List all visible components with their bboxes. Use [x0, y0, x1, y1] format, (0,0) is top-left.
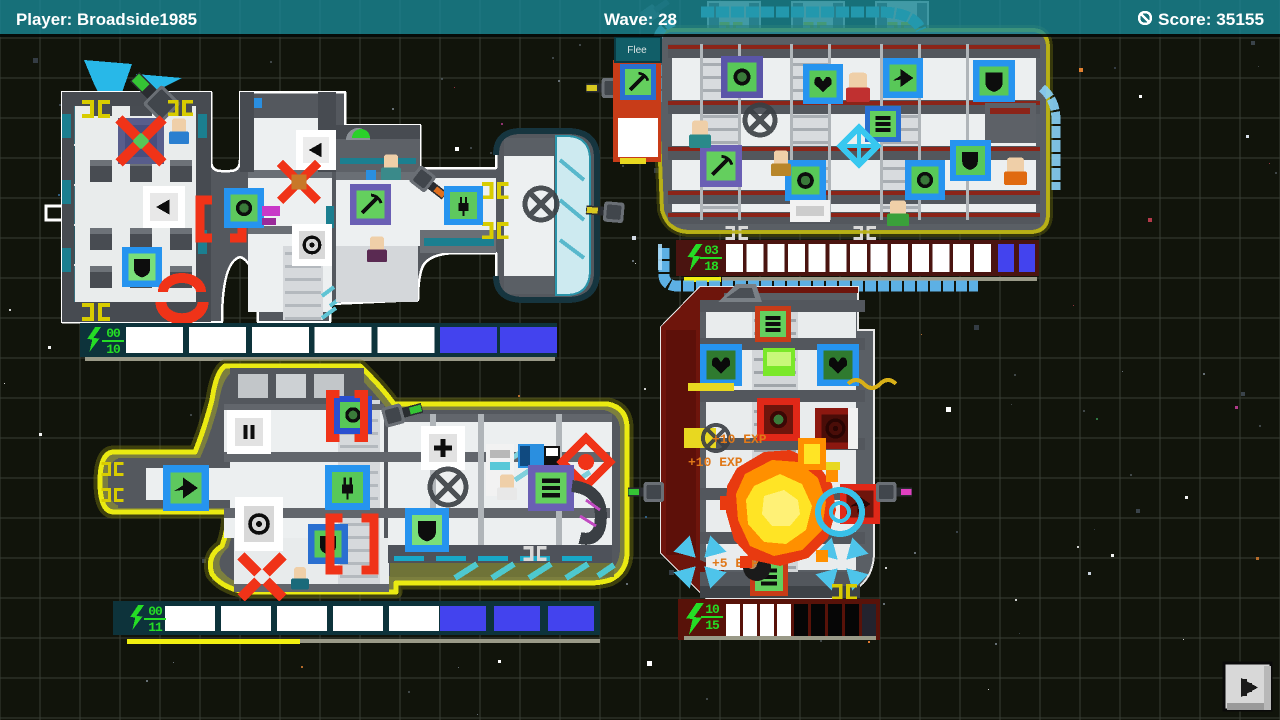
svg-text:03: 03: [704, 243, 719, 258]
svg-text:Player: Broadside1985: Player: Broadside1985: [16, 10, 197, 29]
svg-text:11: 11: [148, 620, 163, 635]
svg-text:Score: 35155: Score: 35155: [1158, 10, 1264, 29]
svg-text:00: 00: [106, 326, 121, 341]
svg-text:Wave: 28: Wave: 28: [604, 10, 677, 29]
svg-text:00: 00: [148, 604, 163, 619]
svg-text:+10 EXP: +10 EXP: [712, 432, 767, 447]
svg-text:Flee: Flee: [627, 45, 647, 56]
svg-text:10: 10: [106, 342, 121, 357]
svg-text:+10 EXP: +10 EXP: [688, 455, 743, 470]
svg-text:18: 18: [704, 259, 719, 274]
svg-text:10: 10: [705, 602, 720, 617]
svg-text:15: 15: [705, 618, 720, 633]
